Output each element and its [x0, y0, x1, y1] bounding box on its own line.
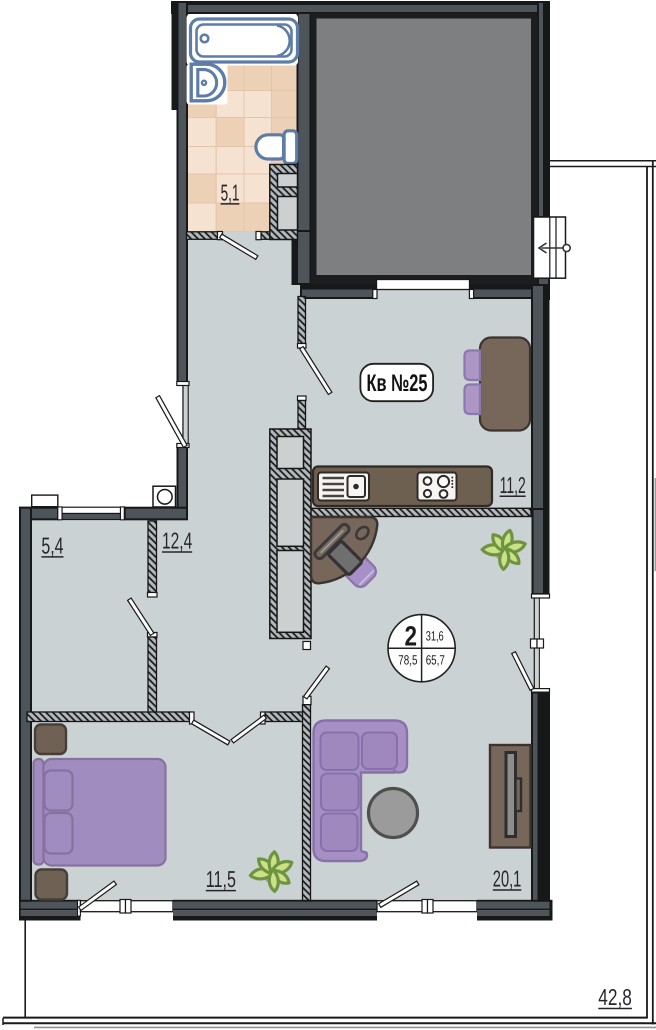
svg-text:5,1: 5,1 [221, 180, 240, 206]
svg-text:Кв №25: Кв №25 [367, 370, 428, 397]
svg-text:11,5: 11,5 [206, 866, 236, 892]
svg-text:5,4: 5,4 [41, 533, 63, 559]
svg-text:11,2: 11,2 [500, 472, 526, 498]
svg-text:2: 2 [405, 621, 418, 652]
svg-text:65,7: 65,7 [426, 652, 445, 667]
svg-text:42,8: 42,8 [598, 984, 632, 1010]
svg-text:78,5: 78,5 [398, 652, 417, 667]
svg-text:20,1: 20,1 [493, 866, 522, 892]
svg-text:12,4: 12,4 [162, 528, 192, 554]
svg-text:31,6: 31,6 [426, 628, 444, 643]
